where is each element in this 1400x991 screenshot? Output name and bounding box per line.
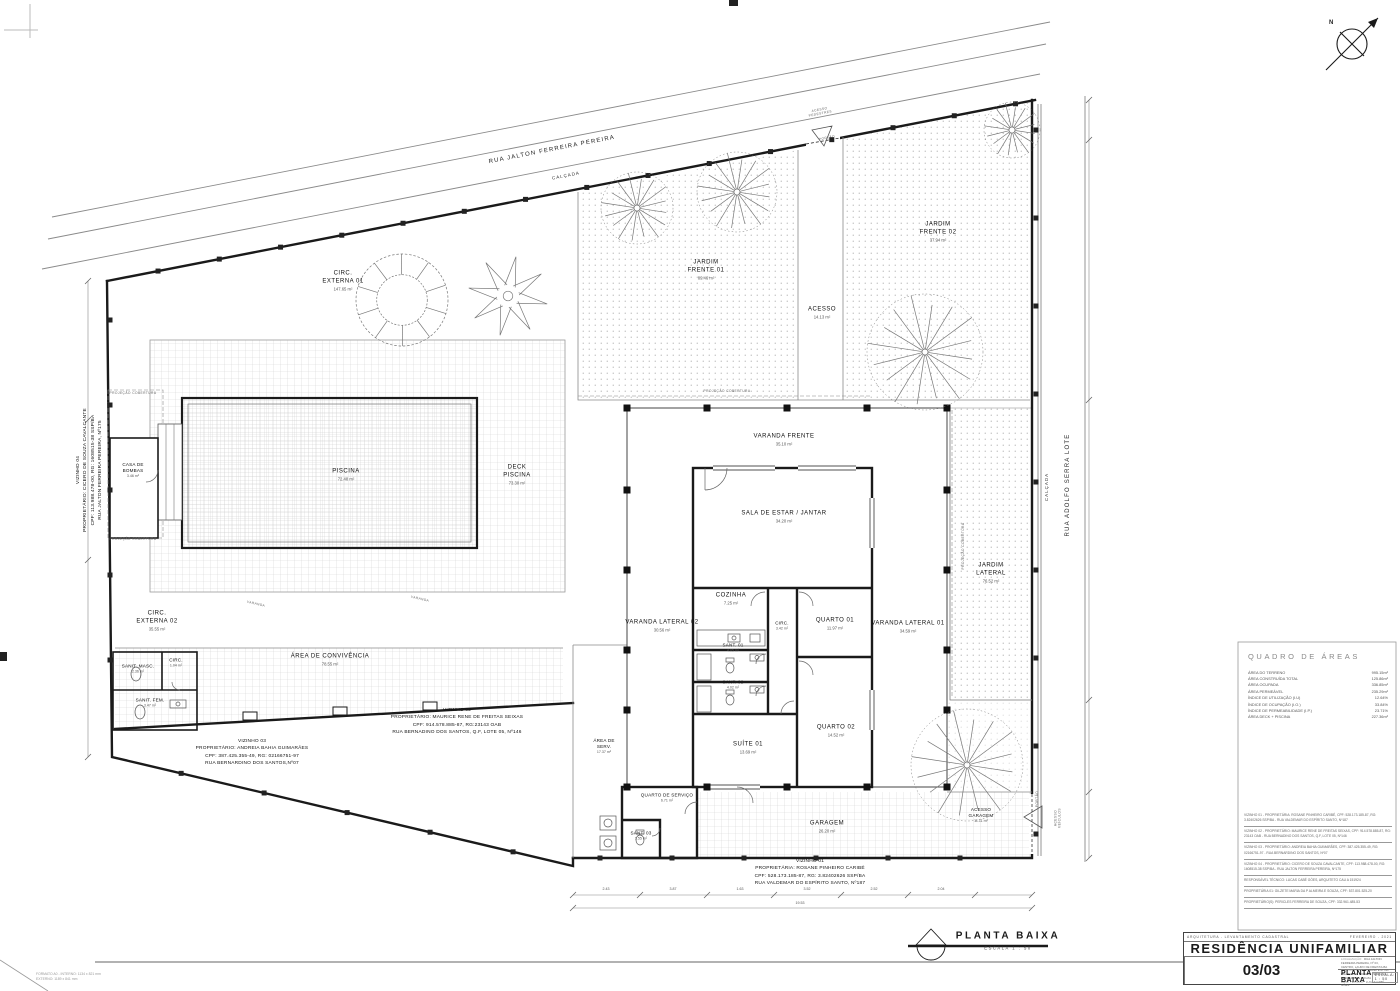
neighbor-block-04: VIZINHO 04 PROPRIETÁRIO: CICERO DE SOUZA… [75,320,105,620]
dimension-value: 2.43 [602,887,611,891]
note-line: VIZINHO 01 - PROPRIETÁRIA: ROSANE PINHEI… [1244,811,1392,827]
room-area: 14.13 m² [808,314,836,319]
note-line: RESPONSÁVEL TÉCNICO: LUCAS CABÉ GÓES, AR… [1244,876,1392,887]
note-line: PROPRIETÁRIO(S): PERICLES FERREIRA DE SO… [1244,898,1392,909]
room-area: 1.55 m² [630,837,651,841]
room-name: JARDIM FRENTE 01 [688,260,725,275]
room-area: 3.47 m² [136,704,165,708]
room-name: SANIT. FEM. [136,698,165,704]
room-label-garagem: GARAGEM26.20 m² [810,820,844,833]
room-name: COZINHA [716,592,747,600]
note-line: VIZINHO 04 - PROPRIETÁRIO: CICERO DE SOU… [1244,860,1392,876]
room-area: 7.25 m² [716,600,747,605]
sheet-number: 03/03 [1184,957,1338,984]
area-row-value: 235.29m² [1372,689,1388,694]
room-name: CIRC. EXTERNA 02 [136,611,177,626]
room-label-circ: CIRC.3.42 m² [775,621,789,632]
neighbor-block-01: VIZINHO 01 PROPRIETÁRIA: ROSANE PINHEIRO… [675,858,945,888]
room-name: QUARTO 01 [816,617,854,625]
format-note: FORMATO A0 - INTERNO: 1134 x 821 mm EXTE… [36,972,101,983]
area-row-label: ÍNDICE DE PERMEABILIDADE (I.P.) [1248,708,1312,713]
note-line: PROPRIETÁRIA 01: GILZETE MARIA DA P ALME… [1244,887,1392,898]
gate-label-right: PORTÃO [1035,791,1039,807]
roof-projection-label-3: PROJEÇÃO COBERTURA [704,389,751,393]
title-block-footer: PLANTA BAIXA ESCALA: 1 : 50 [1338,970,1395,984]
room-name: ÁREA DE SERV. [593,738,614,749]
floor-plan-drawing [0,0,1400,991]
area-row-label: ÍNDICE DE UTILIZAÇÃO (I.U) [1248,695,1300,700]
room-label-circ-externa-02: CIRC. EXTERNA 0235.55 m² [136,611,177,632]
dimension-value: 2.52 [870,887,879,891]
room-area: 2.36 m² [122,670,155,674]
north-arrow-icon [1326,18,1378,70]
room-name: GARAGEM [810,820,844,828]
area-row-value: 995.15m² [1372,670,1388,675]
notes-column: VIZINHO 01 - PROPRIETÁRIA: ROSANE PINHEI… [1244,811,1392,909]
room-label-sant-03: SANT. 031.55 m² [630,831,651,842]
areas-table: QUADRO DE ÁREAS ÁREA DO TERRENO995.15m²Á… [1248,652,1388,720]
room-name: ÁREA DE CONVIVÊNCIA [291,653,370,661]
room-label-circ: CIRC.1.04 m² [169,658,183,669]
room-name: CASA DE BOMBAS [122,462,143,473]
project-title: RESIDÊNCIA UNIFAMILIAR [1184,942,1395,957]
dimension-total: 19.53 [795,901,806,905]
room-area: 3.46 m² [122,474,143,478]
note-line: VIZINHO 02 - PROPRIETÁRIO: MAURICE RENE … [1244,827,1392,843]
area-row-value: 23.71% [1375,708,1388,713]
room-label-quarto-de-servico: QUARTO DE SERVIÇO6.71 m² [641,793,693,804]
area-row-label: ÁREA DECK + PISCINA [1248,714,1290,719]
area-row-label: ÁREA OCUPADA [1248,682,1278,687]
room-area: 147.65 m² [322,286,363,291]
room-label-jardim-frente-01: JARDIM FRENTE 0189.46 m² [688,260,725,281]
room-label-quarto-02: QUARTO 0214.52 m² [817,724,855,737]
veranda-outline [627,408,947,787]
room-name: VARANDA LATERAL 02 [625,619,698,627]
neighbor-block-02: VIZINHO 02 PROPRIETÁRIO: MAURICE RENE DE… [312,707,602,737]
area-row-label: ÁREA CONSTRUÍDA TOTAL [1248,676,1298,681]
room-area: 35.55 m² [136,626,177,631]
room-name: DECK PISCINA [503,465,531,480]
room-label-varanda-lateral-02: VARANDA LATERAL 0230.56 m² [625,619,698,632]
room-name: ACESSO [808,306,836,314]
room-label-casa-de-bombas: CASA DE BOMBAS3.46 m² [122,462,143,478]
room-label-deck-piscina: DECK PISCINA73.30 m² [503,465,531,486]
north-letter: N [1329,20,1333,26]
pump-house [110,438,158,538]
title-block: ARQUITETURA - LEVANTAMENTO CADASTRAL FEV… [1183,932,1396,985]
room-label-acesso-garagem: ACESSO GARAGEM11.11 m² [969,807,994,823]
room-area: 35.10 m² [754,441,815,446]
tree-leafy-icon [356,254,448,346]
area-row-value: 125.86m² [1372,676,1388,681]
areas-table-row: ÁREA DECK + PISCINA227.36m² [1248,714,1388,720]
areas-table-rows: ÁREA DO TERRENO995.15m²ÁREA CONSTRUÍDA T… [1248,669,1388,720]
room-name: VARANDA FRENTE [754,433,815,441]
room-name: CIRC. [169,658,183,664]
room-area: 78.55 m² [291,661,370,666]
area-row-value: 227.36m² [1372,714,1388,719]
roof-projection-label-4: PROJEÇÃO COBERTURA [961,523,965,570]
room-area: 76.52 m² [976,578,1006,583]
street-label-rua-adolfo: RUA ADOLFO SERRA LOTE [1064,434,1072,537]
room-label-area-de-serv: ÁREA DE SERV.17.37 m² [593,738,614,754]
room-label-cozinha: COZINHA7.25 m² [716,592,747,605]
room-area: 6.71 m² [641,799,693,803]
area-row-label: ÁREA DO TERRENO [1248,670,1285,675]
room-label-area-de-convivencia: ÁREA DE CONVIVÊNCIA78.55 m² [291,653,370,666]
title-block-info: LOCALIZAÇÃO:RUA JALTON FERREIRA PEREIRA,… [1338,957,1395,970]
vehicle-access-label: ACESSO VEÍCULOS [1054,808,1063,828]
room-name: SUÍTE 01 [733,741,763,749]
roof-projection-label-1: PROJEÇÃO COBERTURA [110,391,157,395]
neighbor-block-03: VIZINHO 03 PROPRIETÁRIO: ANDREIA BAHIA G… [132,738,372,768]
plan-title: PLANTA BAIXA [956,931,1061,942]
room-area: 11.11 m² [969,819,994,823]
area-row-label: ÁREA PERMEÁVEL [1248,689,1283,694]
room-area: 11.97 m² [816,625,854,630]
room-label-circ-externa-01: CIRC. EXTERNA 01147.65 m² [322,271,363,292]
room-name: JARDIM LATERAL [976,563,1006,578]
room-label-sala-de-estar-jantar: SALA DE ESTAR / JANTAR34.20 m² [741,510,826,523]
area-row-value: 12.64% [1375,695,1388,700]
area-row-value: 33.84% [1375,702,1388,707]
room-name: ACESSO GARAGEM [969,807,994,818]
room-label-piscina: PISCINA72.48 m² [332,468,360,481]
dimension-value: 3.87 [669,887,678,891]
room-label-sant-01: SANT. 014.05 m² [722,643,743,654]
drawing-sheet: CIRC. EXTERNA 01147.65 m²JARDIM FRENTE 0… [0,0,1400,991]
room-area: 13.69 m² [733,749,763,754]
dimension-value: 1.63 [736,887,745,891]
room-name: SANIT. MASC. [122,664,155,670]
roof-projection-label-2: PROJEÇÃO COBERTURA [110,537,157,541]
room-name: PISCINA [332,468,360,476]
room-name: QUARTO 02 [817,724,855,732]
room-area: 89.46 m² [688,275,725,280]
tree-flower-icon [469,257,547,335]
room-area: 30.56 m² [625,627,698,632]
room-area: 34.59 m² [871,628,944,633]
room-area: 14.52 m² [817,732,855,737]
sheet-name: PLANTA BAIXA [1341,970,1372,984]
sheet-scale: ESCALA: 1 : 50 [1372,972,1398,983]
dimension-value: 2.04 [937,887,946,891]
room-area: 17.37 m² [593,750,614,754]
room-label-jardim-lateral: JARDIM LATERAL76.52 m² [976,563,1006,584]
room-area: 4.05 m² [722,649,743,653]
pool [158,398,477,548]
note-line: VIZINHO 03 - PROPRIETÁRIO: ANDREIA BAHIA… [1244,843,1392,859]
room-area: 26.20 m² [810,828,844,833]
area-row-value: 336.85m² [1372,682,1388,687]
discipline-label: ARQUITETURA - LEVANTAMENTO CADASTRAL [1187,935,1289,939]
room-name: JARDIM FRENTE 02 [920,222,957,237]
room-label-jardim-frente-02: JARDIM FRENTE 0237.94 m² [920,222,957,243]
room-area: 37.94 m² [920,237,957,242]
room-area: 73.30 m² [503,480,531,485]
room-label-acesso: ACESSO14.13 m² [808,306,836,319]
room-name: CIRC. [775,621,789,627]
room-label-varanda-frente: VARANDA FRENTE35.10 m² [754,433,815,446]
room-name: SANT. 02 [722,680,743,686]
room-label-sanit-fem: SANIT. FEM.3.47 m² [136,698,165,709]
room-label-varanda-lateral-01: VARANDA LATERAL 0134.59 m² [871,620,944,633]
room-area: 1.04 m² [169,664,183,668]
room-area: 3.42 m² [775,627,789,631]
room-label-sanit-masc: SANIT. MASC.2.36 m² [122,664,155,675]
area-row-label: ÍNDICE DE OCUPAÇÃO (I.O.) [1248,702,1301,707]
date-label: FEVEREIRO - 2021 [1350,935,1392,939]
room-label-sant-02: SANT. 024.02 m² [722,680,743,691]
room-name: QUARTO DE SERVIÇO [641,793,693,799]
room-name: SANT. 01 [722,643,743,649]
room-name: SALA DE ESTAR / JANTAR [741,510,826,518]
room-label-quarto-01: QUARTO 0111.97 m² [816,617,854,630]
areas-table-title: QUADRO DE ÁREAS [1248,652,1388,661]
room-area: 34.20 m² [741,518,826,523]
room-area: 72.48 m² [332,476,360,481]
room-name: VARANDA LATERAL 01 [871,620,944,628]
room-area: 4.02 m² [722,686,743,690]
room-name: CIRC. EXTERNA 01 [322,271,363,286]
sidewalk-label-right: CALÇADA [1044,473,1050,501]
room-label-suite-01: SUÍTE 0113.69 m² [733,741,763,754]
room-name: SANT. 03 [630,831,651,837]
plan-scale: ESCALA 1 : 50 [984,946,1031,951]
dimension-value: 3.52 [803,887,812,891]
